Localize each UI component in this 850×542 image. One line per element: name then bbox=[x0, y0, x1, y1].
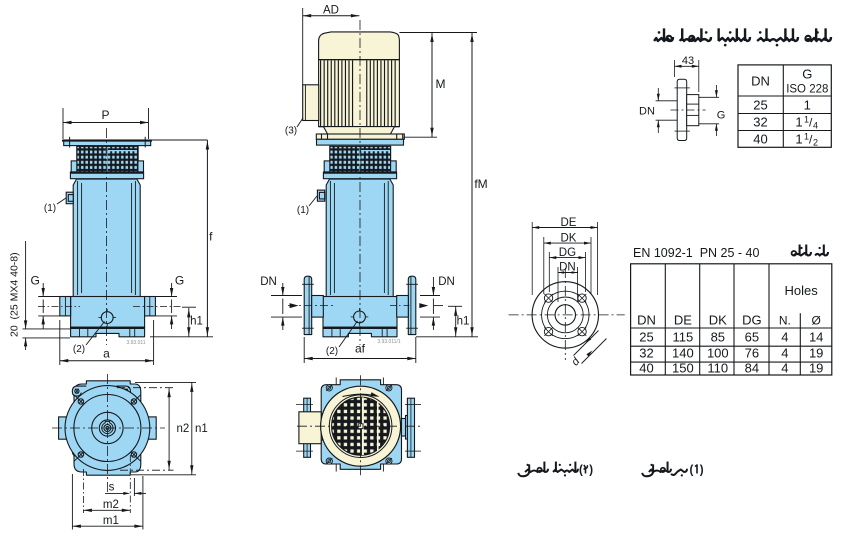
svg-text:(2): (2) bbox=[73, 344, 85, 355]
svg-text:n1: n1 bbox=[195, 423, 208, 435]
svg-text:G: G bbox=[717, 110, 726, 122]
svg-text:(3): (3) bbox=[285, 126, 297, 137]
svg-text:G: G bbox=[31, 274, 40, 288]
svg-text:DN: DN bbox=[637, 313, 656, 328]
svg-text:25: 25 bbox=[639, 330, 653, 345]
svg-text:h1: h1 bbox=[457, 316, 470, 328]
svg-text:h1: h1 bbox=[190, 316, 203, 328]
svg-text:1: 1 bbox=[804, 98, 811, 113]
svg-text:19: 19 bbox=[809, 346, 823, 361]
svg-text:DN: DN bbox=[639, 106, 655, 118]
svg-text:G: G bbox=[175, 274, 184, 288]
svg-text:Holes: Holes bbox=[784, 283, 818, 298]
svg-text:EN 1092-1 PN 25 - 40: EN 1092-1 PN 25 - 40 bbox=[633, 246, 760, 260]
svg-text:N.: N. bbox=[779, 314, 791, 328]
svg-text:3.93.011: 3.93.011 bbox=[126, 340, 145, 346]
svg-text:4: 4 bbox=[781, 361, 788, 376]
svg-text:DN: DN bbox=[260, 276, 277, 288]
svg-text:DG: DG bbox=[742, 313, 762, 328]
svg-text:DK: DK bbox=[709, 313, 727, 328]
svg-text:DN: DN bbox=[751, 74, 770, 89]
svg-text:20 (25 MX4 40-8): 20 (25 MX4 40-8) bbox=[9, 252, 21, 337]
svg-text:m1: m1 bbox=[103, 515, 119, 527]
svg-text:(2): (2) bbox=[326, 346, 338, 357]
svg-text:fM: fM bbox=[474, 177, 487, 191]
svg-text:(1): (1) bbox=[44, 203, 56, 214]
svg-text:DN: DN bbox=[438, 276, 455, 288]
svg-text:32: 32 bbox=[753, 115, 767, 130]
svg-text:1: 1 bbox=[795, 132, 802, 147]
svg-text:65: 65 bbox=[745, 330, 759, 345]
svg-text:4: 4 bbox=[781, 330, 788, 345]
svg-text:100: 100 bbox=[707, 346, 729, 361]
svg-text:1: 1 bbox=[795, 115, 802, 130]
svg-text:110: 110 bbox=[707, 361, 728, 376]
svg-text:25: 25 bbox=[753, 98, 767, 113]
svg-text:115: 115 bbox=[673, 330, 694, 345]
svg-text:84: 84 bbox=[745, 361, 759, 376]
svg-text:32: 32 bbox=[639, 346, 653, 361]
svg-text:4: 4 bbox=[813, 121, 818, 131]
svg-text:af: af bbox=[355, 342, 366, 356]
svg-text:(1): (1) bbox=[297, 205, 309, 216]
svg-text:3.93.011/1: 3.93.011/1 bbox=[377, 339, 400, 345]
svg-text:ISO 228: ISO 228 bbox=[786, 84, 828, 96]
svg-text:85: 85 bbox=[711, 330, 725, 345]
svg-text:M: M bbox=[436, 77, 446, 91]
svg-text:DE: DE bbox=[674, 313, 692, 328]
svg-text:4: 4 bbox=[781, 346, 788, 361]
svg-text:40: 40 bbox=[753, 132, 767, 147]
svg-text:G: G bbox=[802, 67, 812, 82]
svg-text:140: 140 bbox=[672, 346, 694, 361]
svg-text:40: 40 bbox=[639, 361, 653, 376]
svg-text:2: 2 bbox=[813, 138, 818, 148]
svg-text:s: s bbox=[109, 482, 115, 494]
svg-text:P: P bbox=[101, 108, 109, 122]
svg-text:76: 76 bbox=[745, 346, 759, 361]
svg-text:n2: n2 bbox=[177, 423, 190, 435]
svg-text:19: 19 bbox=[809, 361, 823, 376]
svg-text:150: 150 bbox=[672, 361, 694, 376]
svg-text:AD: AD bbox=[323, 5, 339, 17]
svg-text:a: a bbox=[103, 347, 110, 361]
svg-text:14: 14 bbox=[809, 330, 823, 345]
svg-text:m2: m2 bbox=[103, 499, 119, 511]
svg-text:Ø: Ø bbox=[812, 314, 821, 328]
